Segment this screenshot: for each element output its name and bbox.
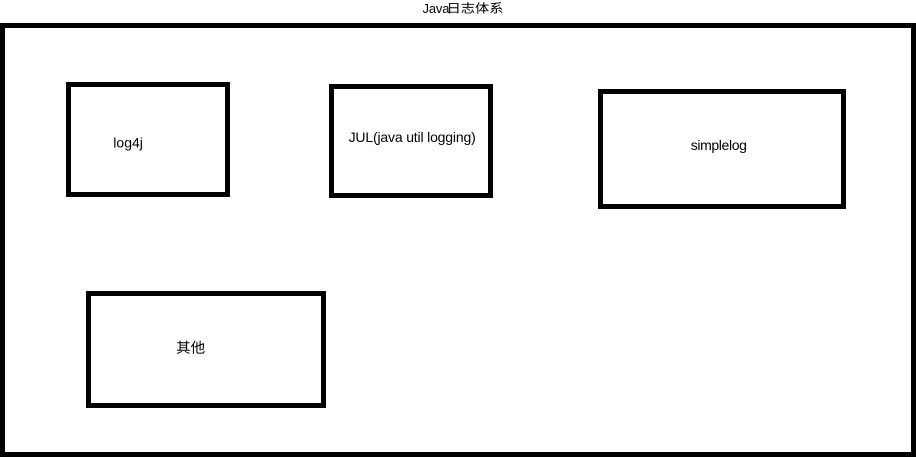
svg-text:JUL(java util logging): JUL(java util logging) bbox=[349, 129, 476, 145]
svg-text:log4j: log4j bbox=[113, 135, 143, 151]
svg-text:Java: Java bbox=[423, 1, 451, 16]
svg-text:simplelog: simplelog bbox=[691, 137, 747, 153]
